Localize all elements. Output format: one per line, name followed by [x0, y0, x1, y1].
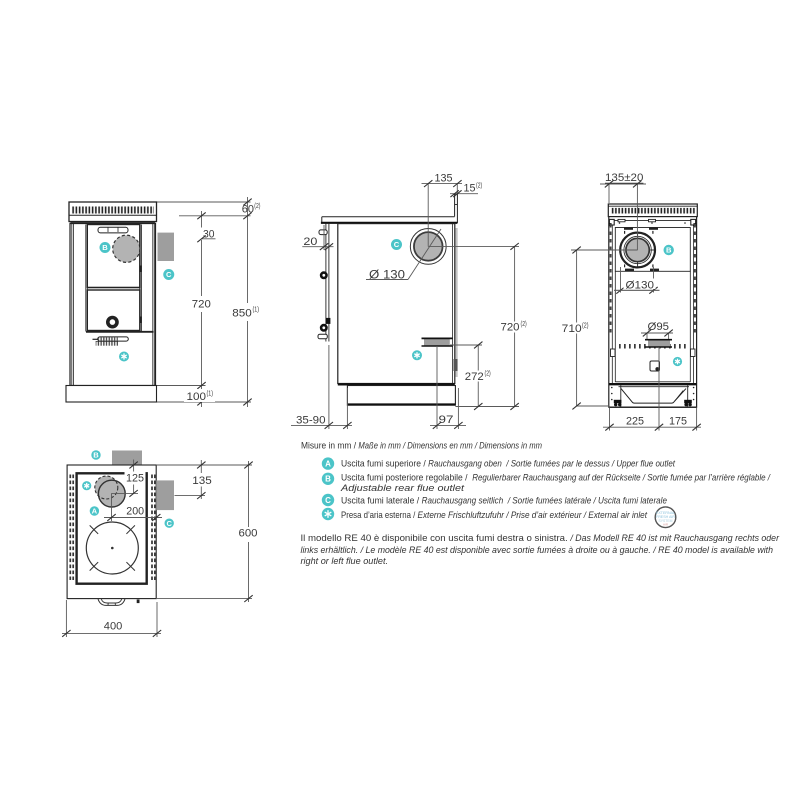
svg-text:20: 20: [303, 236, 317, 248]
svg-text:Regulierbarer Rauchausgang auf: Regulierbarer Rauchausgang auf der Rücks…: [472, 472, 771, 483]
svg-text:Presa d’aria esterna /: Presa d’aria esterna /: [341, 509, 418, 520]
svg-text:720: 720: [192, 299, 211, 311]
svg-text:Ø130: Ø130: [626, 280, 655, 292]
svg-text:Maße in mm / Dimensions en mm: Maße in mm / Dimensions en mm / Dimensio…: [358, 439, 542, 450]
svg-text:60: 60: [242, 204, 254, 216]
svg-text:Ø95: Ø95: [648, 321, 670, 333]
svg-text:Externe Frischluftzufuhr / Pri: Externe Frischluftzufuhr / Prise d’air e…: [418, 509, 648, 520]
svg-text:400: 400: [104, 621, 123, 633]
svg-text:(2): (2): [521, 321, 527, 328]
svg-text:(2): (2): [476, 183, 482, 190]
svg-text:B: B: [666, 246, 672, 255]
svg-text:right or left flue outlet.: right or left flue outlet.: [301, 555, 389, 566]
svg-text:A: A: [325, 459, 331, 468]
svg-text:(2): (2): [485, 371, 491, 378]
svg-text:Rauchausgang oben / Sortie fu: Rauchausgang oben / Sortie fumées par le…: [428, 458, 675, 469]
svg-text:(1): (1): [253, 307, 260, 314]
svg-text:200: 200: [126, 506, 144, 518]
svg-text:(2): (2): [254, 203, 260, 210]
svg-text:Rauchausgang seitlich / Sorti: Rauchausgang seitlich / Sortie fumées la…: [422, 495, 667, 506]
svg-text:125: 125: [126, 473, 144, 485]
svg-text:97: 97: [439, 414, 454, 426]
svg-text:15: 15: [464, 183, 476, 195]
svg-text:B: B: [325, 475, 331, 484]
svg-text:100: 100: [187, 391, 207, 403]
svg-text:35-90: 35-90: [296, 415, 326, 427]
svg-text:B: B: [93, 451, 99, 460]
svg-text:135: 135: [192, 475, 212, 487]
svg-text:AIR: AIR: [663, 523, 669, 527]
svg-text:135±20: 135±20: [605, 172, 643, 184]
svg-text:175: 175: [669, 416, 687, 428]
svg-text:272: 272: [465, 371, 484, 383]
svg-text:850: 850: [232, 308, 252, 320]
svg-text:Uscita fumi superiore /: Uscita fumi superiore /: [341, 458, 428, 469]
svg-text:Il modello RE 40 è disponibile: Il modello RE 40 è disponibile con uscit…: [301, 532, 571, 543]
svg-text:30: 30: [203, 229, 215, 241]
svg-text:(2): (2): [582, 323, 589, 330]
svg-text:225: 225: [626, 416, 644, 428]
svg-text:links erhältlich. / Le modèle: links erhältlich. / Le modèle RE 40 est …: [301, 544, 774, 555]
svg-text:C: C: [394, 240, 400, 249]
svg-text:710: 710: [562, 323, 582, 335]
svg-text:C: C: [166, 519, 172, 528]
svg-text:C: C: [325, 496, 331, 505]
svg-text:Uscita fumi laterale /: Uscita fumi laterale /: [341, 495, 422, 506]
svg-text:/ Das Modell RE 40 ist mit Rau: / Das Modell RE 40 ist mit Rauchausgang …: [569, 532, 779, 543]
svg-text:(1): (1): [207, 391, 214, 398]
svg-text:720: 720: [501, 322, 520, 334]
svg-text:600: 600: [239, 528, 258, 540]
svg-text:Misure in mm /: Misure in mm /: [301, 439, 358, 450]
svg-text:A: A: [92, 507, 98, 516]
svg-text:135: 135: [435, 173, 453, 185]
svg-text:C: C: [166, 270, 172, 279]
svg-text:Adjustable rear flue outlet: Adjustable rear flue outlet: [340, 482, 465, 493]
svg-text:B: B: [102, 243, 108, 252]
svg-text:Ø 130: Ø 130: [369, 270, 405, 282]
svg-text:Uscita fumi posteriore regolab: Uscita fumi posteriore regolabile /: [341, 472, 472, 483]
